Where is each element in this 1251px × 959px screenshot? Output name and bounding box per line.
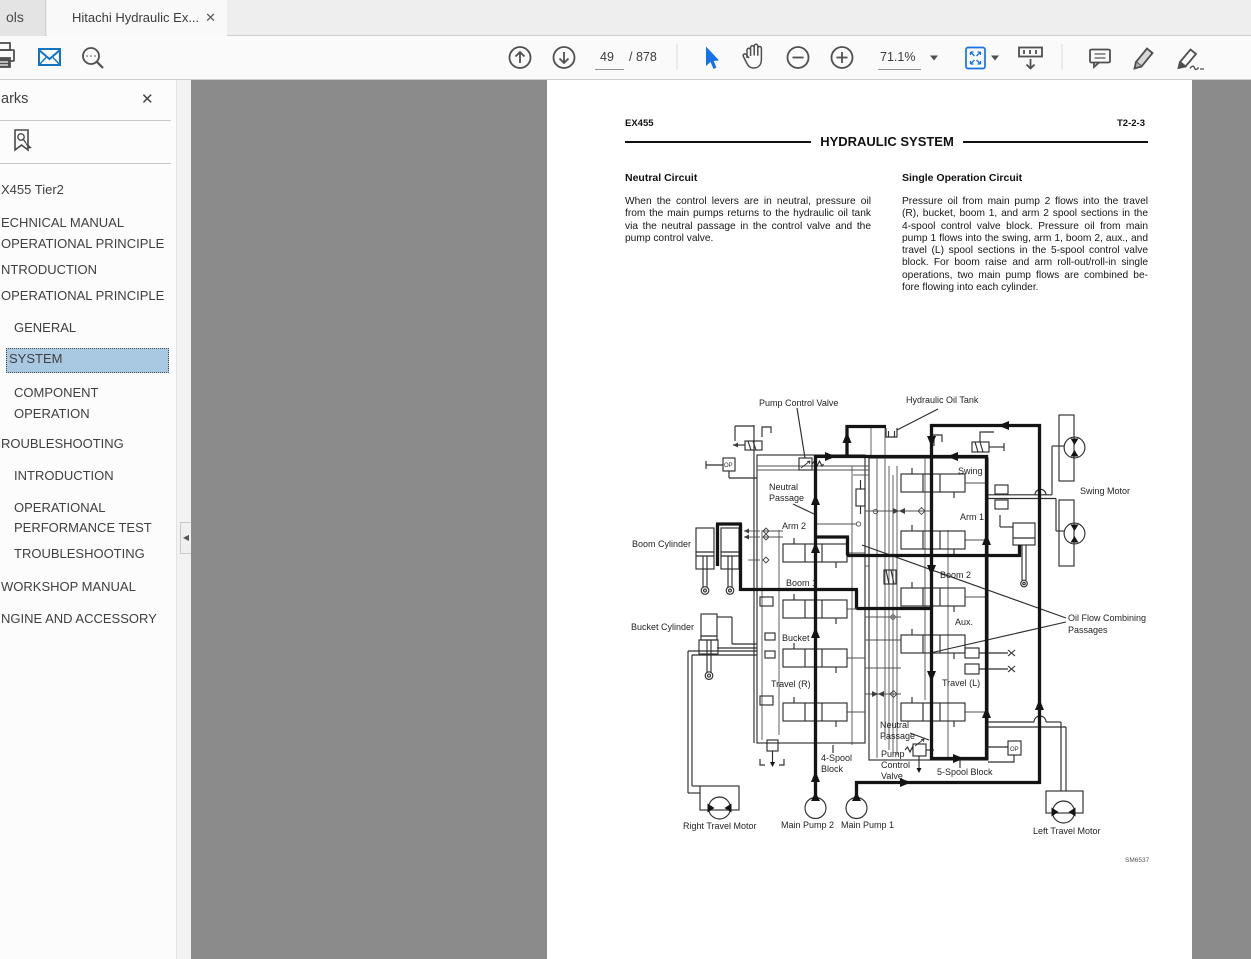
svg-text:Control: Control — [881, 760, 910, 770]
svg-text:Passage: Passage — [769, 493, 804, 503]
svg-text:Passages: Passages — [1068, 625, 1108, 635]
svg-text:Block: Block — [821, 764, 844, 774]
svg-text:5-Spool Block: 5-Spool Block — [937, 767, 993, 777]
svg-text:Boom 2: Boom 2 — [940, 570, 971, 580]
svg-text:Right Travel Motor: Right Travel Motor — [683, 821, 757, 831]
svg-text:Swing: Swing — [958, 466, 983, 476]
svg-text:Boom 1: Boom 1 — [786, 578, 817, 588]
svg-text:OP: OP — [1010, 747, 1019, 753]
svg-text:Passage: Passage — [880, 731, 915, 741]
svg-text:Arm 1: Arm 1 — [960, 512, 984, 522]
svg-text:Pump: Pump — [881, 749, 905, 759]
svg-text:Travel (L): Travel (L) — [942, 678, 980, 688]
svg-text:Boom Cylinder: Boom Cylinder — [632, 539, 691, 549]
svg-text:Hydraulic Oil Tank: Hydraulic Oil Tank — [906, 395, 979, 405]
svg-text:Pump Control Valve: Pump Control Valve — [759, 398, 838, 408]
svg-text:Neutral: Neutral — [769, 482, 798, 492]
svg-text:Bucket Cylinder: Bucket Cylinder — [631, 622, 694, 632]
svg-text:Arm 2: Arm 2 — [782, 521, 806, 531]
svg-text:Swing Motor: Swing Motor — [1080, 486, 1130, 496]
svg-text:Neutral: Neutral — [880, 720, 909, 730]
svg-text:Left Travel Motor: Left Travel Motor — [1033, 826, 1101, 836]
svg-text:Aux.: Aux. — [955, 617, 973, 627]
svg-text:Main Pump 2: Main Pump 2 — [781, 820, 834, 830]
svg-text:Valve: Valve — [881, 771, 903, 781]
svg-text:4-Spool: 4-Spool — [821, 753, 852, 763]
svg-text:OP: OP — [724, 463, 733, 469]
svg-text:Oil Flow Combining: Oil Flow Combining — [1068, 613, 1146, 623]
svg-text:Travel (R): Travel (R) — [771, 679, 811, 689]
svg-text:Main Pump 1: Main Pump 1 — [841, 820, 894, 830]
svg-text:Bucket: Bucket — [782, 633, 810, 643]
svg-text:SM6537: SM6537 — [1125, 857, 1150, 864]
